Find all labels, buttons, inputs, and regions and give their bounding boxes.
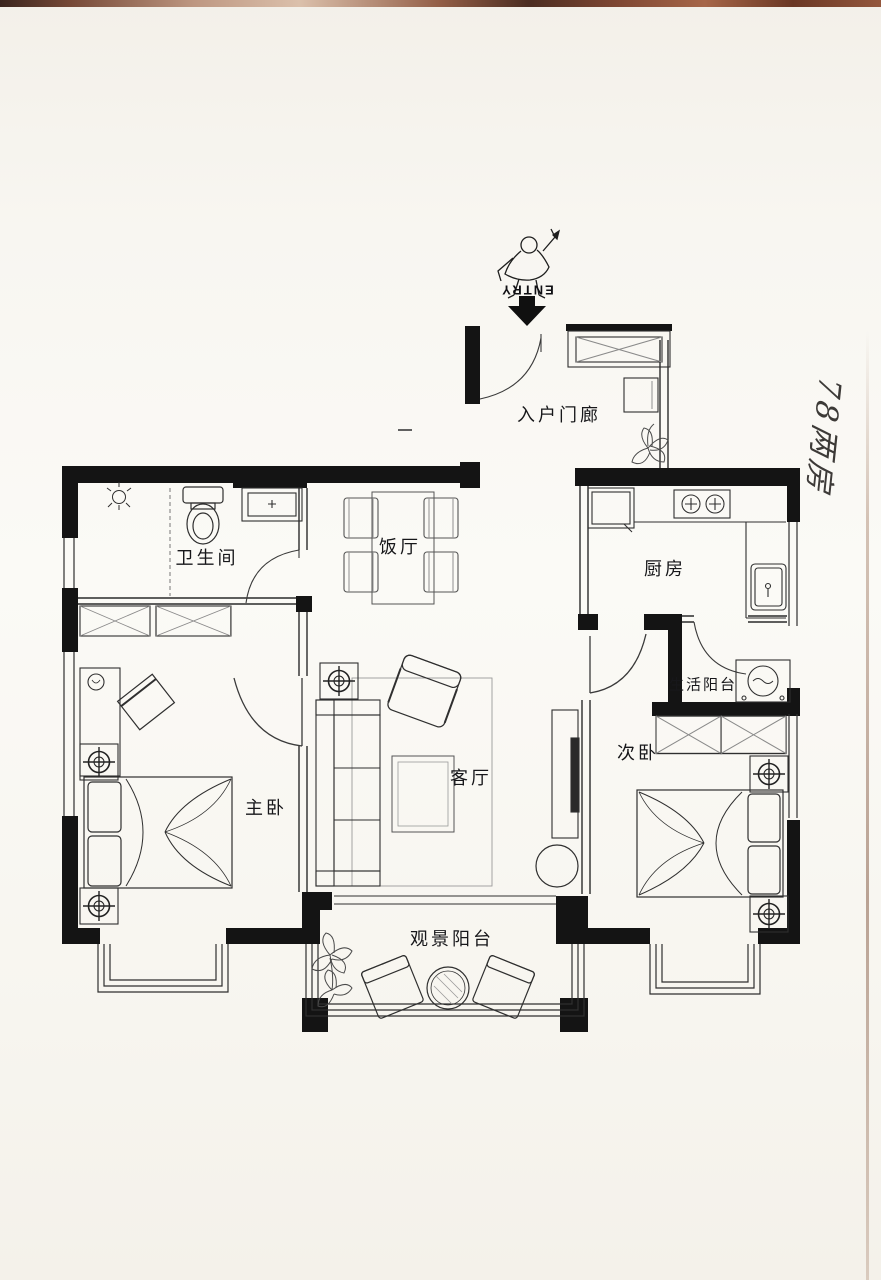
master-bedroom-door: [234, 678, 302, 746]
kitchen-sink: [751, 564, 786, 610]
room-label-living-room: 客厅: [450, 764, 492, 790]
master-nightstand-2: [80, 888, 118, 924]
entry-shoe-cabinet: [568, 331, 670, 367]
armchair: [386, 654, 462, 729]
coffee-table: [392, 756, 454, 832]
room-label-bathroom: 卫生间: [176, 544, 239, 570]
entry-marker-label: ENTRY: [500, 283, 554, 298]
fridge: [588, 488, 634, 532]
second-bedroom-door: [590, 634, 646, 693]
master-nightstand-1: [80, 744, 118, 780]
washing-machine: [736, 660, 790, 702]
second-nightstand-2: [750, 896, 788, 932]
tv-stand: [552, 710, 579, 838]
room-label-entry-porch: 入户门廊: [517, 401, 601, 427]
toilet: [183, 487, 223, 544]
sofa: [316, 700, 380, 886]
bathroom-sink: [242, 488, 302, 521]
master-desk: [80, 668, 120, 776]
shower-head-icon: [107, 482, 131, 510]
entry-bench: [624, 378, 658, 412]
room-label-view-balcony: 观景阳台: [410, 925, 494, 951]
master-chair: [118, 674, 175, 729]
second-wardrobe: [656, 716, 786, 754]
room-label-service-balcony: 生活阳台: [669, 674, 737, 695]
balcony-round-table: [427, 967, 469, 1009]
master-wardrobe: [80, 606, 231, 636]
floor-plan-drawing: [0, 0, 881, 1280]
entry-arrow-icon: [508, 296, 546, 326]
stove: [674, 490, 730, 518]
bathroom-door-arc: [246, 550, 299, 603]
second-bed: [637, 790, 783, 897]
room-label-master-bedroom: 主卧: [245, 794, 287, 820]
room-label-dining: 饭厅: [379, 533, 421, 559]
living-round-table: [536, 845, 578, 887]
room-label-second-bedroom: 次卧: [617, 739, 659, 765]
entry-plant: [632, 424, 668, 464]
master-bed: [84, 777, 232, 888]
room-label-kitchen: 厨房: [644, 555, 686, 581]
service-balcony-door-arc: [694, 622, 746, 674]
entry-door-arc: [480, 338, 541, 399]
scanned-floor-plan-page: ENTRY 入户门廊 饭厅 卫生间 厨房 生活阳台 主卧 客厅 次卧 观景阳台 …: [0, 0, 881, 1280]
second-nightstand-1: [750, 756, 788, 792]
